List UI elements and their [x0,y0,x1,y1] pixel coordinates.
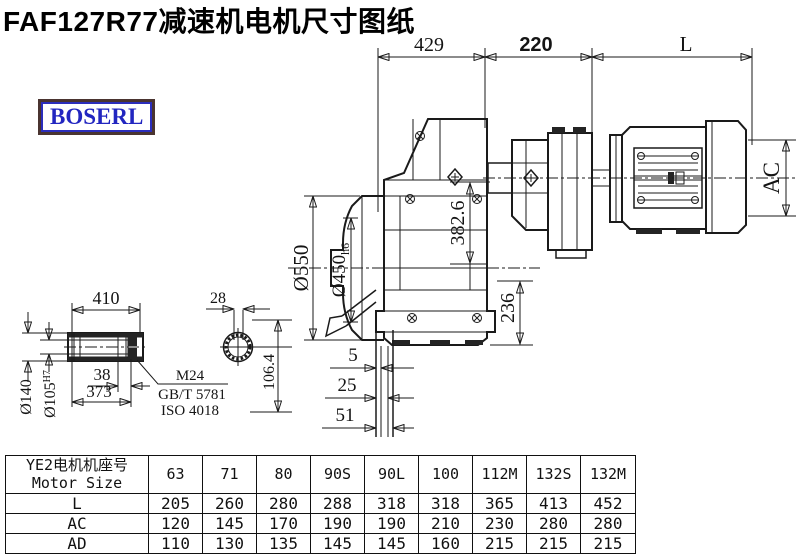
dim-236-label: 236 [497,293,519,323]
cell-value: 145 [311,534,365,554]
cell-value: 190 [365,514,419,534]
cell-value: 215 [581,534,636,554]
row-label: AD [6,534,149,554]
table-row-AC: AC 120 145 170 190 190 210 230 280 280 [6,514,636,534]
cell-value: 160 [419,534,473,554]
top-dimension-chain: 429 220 L [378,32,752,240]
drawing-page: FAF127R77减速机电机尺寸图纸 BOSERL 429 220 L [0,0,800,557]
cell-value: 230 [473,514,527,534]
dim-28-label: 28 [210,290,226,307]
col-header: 132M [581,456,636,494]
cell-value: 205 [149,494,203,514]
cell-value: 260 [203,494,257,514]
dim-AC-label: AC [759,162,784,194]
col-header: 80 [257,456,311,494]
motor-body [483,121,795,234]
cell-value: 135 [257,534,311,554]
cell-value: 365 [473,494,527,514]
dim-25-label: 25 [338,375,357,396]
col-header: 112M [473,456,527,494]
table-row-L: L 205 260 280 288 318 318 365 413 452 [6,494,636,514]
cell-value: 145 [365,534,419,554]
cell-value: 215 [473,534,527,554]
row-label: L [6,494,149,514]
col-header: 100 [419,456,473,494]
cell-value: 318 [419,494,473,514]
dim-L-label: L [680,32,693,56]
cell-value: 110 [149,534,203,554]
main-view-dimensions: Ø550 Ø450h6 382.6 236 AC [288,140,796,428]
cell-value: 170 [257,514,311,534]
dim-220-label: 220 [519,34,552,56]
header-en: Motor Size [6,475,148,492]
cell-value: 288 [311,494,365,514]
row-label: AC [6,514,149,534]
dim-410-label: 410 [93,288,120,308]
table-corner-header: YE2电机机座号 Motor Size [6,456,149,494]
cell-value: 452 [581,494,636,514]
std-gb-label: GB/T 5781 [158,387,226,403]
table-header-row: YE2电机机座号 Motor Size 63 71 80 90S 90L 100… [6,456,636,494]
cell-value: 280 [257,494,311,514]
cell-value: 130 [203,534,257,554]
cell-value: 190 [311,514,365,534]
dim-373-label: 373 [86,382,112,401]
col-header: 90L [365,456,419,494]
output-flange-bell [326,196,393,437]
shaft-detail-view: 410 Ø140 Ø105H7 [18,288,228,419]
cell-value: 280 [581,514,636,534]
dim-dia105-label: Ø105H7 [42,370,59,418]
dim-429-label: 429 [414,34,444,56]
cell-value: 120 [149,514,203,534]
dim-51-label: 51 [336,405,355,426]
dim-5-label: 5 [348,345,358,366]
table-row-AD: AD 110 130 135 145 145 160 215 215 215 [6,534,636,554]
col-header: 63 [149,456,203,494]
motor-adapter [488,127,592,258]
cell-value: 413 [527,494,581,514]
thread-label: M24 [176,368,205,384]
col-header: 90S [311,456,365,494]
std-iso-label: ISO 4018 [161,403,219,419]
dim-dia450-label: Ø450h6 [329,243,352,297]
cell-value: 215 [527,534,581,554]
cell-value: 210 [419,514,473,534]
cell-value: 145 [203,514,257,534]
motor-size-table: YE2电机机座号 Motor Size 63 71 80 90S 90L 100… [5,455,636,554]
col-header: 71 [203,456,257,494]
dim-dia140-label: Ø140 [18,379,35,415]
gearbox-housing [376,119,495,345]
cell-value: 318 [365,494,419,514]
col-header: 132S [527,456,581,494]
dim-106-label: 106.4 [261,354,278,390]
header-cn: YE2电机机座号 [6,457,148,474]
cell-value: 280 [527,514,581,534]
dim-382-label: 382.6 [447,201,469,246]
